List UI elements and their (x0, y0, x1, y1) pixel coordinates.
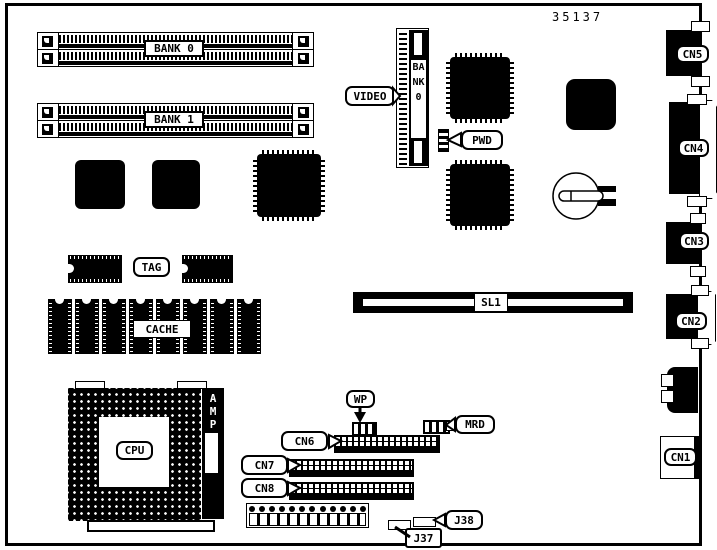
port-tab (691, 338, 709, 349)
port-tab (687, 196, 707, 207)
port-tab (691, 21, 710, 32)
cache-chip (48, 299, 72, 354)
front-panel-connector (246, 503, 369, 528)
cache-chip (237, 299, 261, 354)
cpu-socket-tab (75, 381, 105, 389)
pwd-jumper (438, 129, 449, 152)
qfp-chip (446, 160, 514, 230)
cpu-socket-tab (177, 381, 207, 389)
cn3-label: CN3 (679, 232, 709, 250)
mrd-callout: MRD (455, 415, 495, 434)
cn6-header (334, 435, 440, 453)
amp-regulator: AMP (202, 388, 224, 519)
bank0-label: BANK 0 (144, 40, 204, 57)
tag-callout: TAG (133, 257, 170, 277)
j37-callout: J37 (405, 528, 442, 548)
port-tab (691, 285, 709, 296)
cn5-label: CN5 (676, 45, 709, 63)
cache-chip (102, 299, 126, 354)
wp-jumper (352, 422, 377, 436)
cn8-header (289, 482, 414, 500)
aux-connector-notch (661, 374, 674, 387)
video-bank-slot: BANK0 (396, 28, 429, 168)
cn2-label: CN2 (675, 312, 707, 330)
cache-chip (210, 299, 234, 354)
pwd-callout: PWD (461, 130, 503, 150)
tag-sram-chip (68, 255, 122, 283)
video-callout: VIDEO (345, 86, 395, 106)
cn4-label: CN4 (678, 139, 709, 157)
cn8-callout: CN8 (241, 478, 288, 498)
qfp-chip (446, 53, 514, 123)
cache-chip (75, 299, 99, 354)
simm-latch (292, 33, 313, 49)
ic-chip (152, 160, 200, 209)
cn7-callout: CN7 (241, 455, 288, 475)
motherboard-diagram: 35137 BANK 0 BANK 1 BANK0 VIDEO (0, 0, 717, 550)
sl1-label: SL1 (474, 293, 508, 312)
wp-callout: WP (346, 390, 375, 408)
ic-chip (566, 79, 616, 130)
amp-label: AMP (208, 392, 218, 431)
j38-callout: J38 (445, 510, 483, 530)
part-number: 35137 (552, 10, 603, 24)
simm-latch (38, 33, 59, 49)
cn7-header (289, 459, 414, 477)
mrd-jumper-cap (446, 421, 455, 431)
ic-chip (75, 160, 125, 209)
tag-sram-chip (182, 255, 233, 283)
port-tab (690, 266, 706, 277)
port-tab (690, 213, 706, 224)
port-tab (687, 94, 707, 105)
qfp-chip (253, 150, 325, 221)
cache-callout: CACHE (133, 320, 191, 338)
port-tab (691, 76, 710, 87)
cpu-callout: CPU (116, 441, 153, 460)
cn6-callout: CN6 (281, 431, 328, 451)
aux-connector-notch (661, 390, 674, 403)
bank1-label: BANK 1 (144, 111, 204, 128)
cn1-label: CN1 (664, 448, 697, 466)
video-bank-slot-label: BANK0 (411, 60, 426, 138)
cpu-retention-bar (87, 520, 215, 532)
j38-jumper (413, 517, 436, 527)
